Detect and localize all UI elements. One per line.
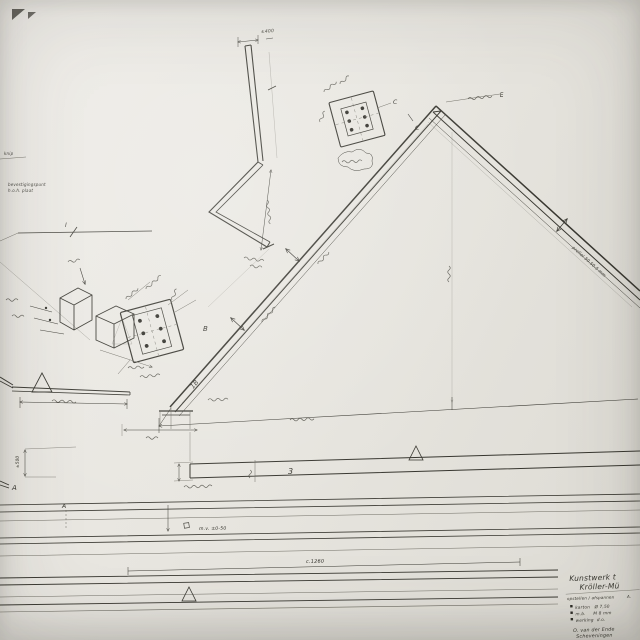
- right-slope-outer: [436, 106, 640, 291]
- illegible-annotation: [317, 251, 330, 265]
- beam-lines: [0, 381, 130, 395]
- bar-line: [0, 604, 558, 612]
- note-fastening-2: h.o.h. plaat: [8, 188, 33, 193]
- label-mark-e: E: [499, 92, 504, 99]
- illegible-annotation: [319, 111, 326, 123]
- dimension-line: [238, 40, 258, 42]
- illegible-annotation: [323, 81, 337, 93]
- title-footer-2: Scheveningen: [576, 633, 613, 640]
- dimension-ticks: [238, 35, 273, 47]
- left-slope-outer: [170, 106, 436, 407]
- ground-bars-lower: [0, 570, 558, 612]
- title-item-2: m.b. M 8 mm: [575, 610, 611, 616]
- plate-inner: [341, 102, 373, 136]
- label-mark-i: I: [65, 222, 67, 229]
- inner-dim-right: [428, 122, 632, 307]
- leader-arrows: [30, 268, 85, 334]
- point-marker: [49, 319, 51, 321]
- title-block: Kunstwerk t Kröller-Mü opstellen / afspa…: [565, 572, 640, 640]
- member-outline: [190, 451, 640, 478]
- bullet-icon: [571, 618, 573, 620]
- truss-foot-detail: [122, 398, 228, 461]
- bullet-icon: [570, 611, 572, 613]
- leader-lines: [0, 157, 26, 241]
- bolt-icon: [162, 339, 167, 344]
- member-3: 3: [174, 446, 640, 488]
- bolt-icon: [144, 344, 149, 349]
- label-part-3: 3: [288, 467, 293, 476]
- bar-line: [0, 597, 558, 605]
- title-item-3: werking d.o.: [576, 617, 606, 623]
- reference-line: [18, 231, 152, 233]
- span-dimension-line: [159, 399, 638, 426]
- left-slope-thin: [179, 115, 445, 416]
- inner-dim-left: [182, 124, 428, 403]
- beam-stub: [0, 481, 9, 488]
- bolt-icon: [141, 331, 146, 336]
- right-slope-inner: [433, 112, 640, 300]
- label-detail-c: C: [393, 99, 398, 106]
- beam-left-bottom: ±500 A: [0, 377, 130, 492]
- bar-line: [0, 510, 640, 521]
- right-slope-profile-note: profiel 50.50.5 mm: [571, 244, 608, 278]
- extension-lines: [122, 424, 190, 461]
- bracket-box-1: [60, 288, 92, 330]
- label-part-1b: 1B: [189, 378, 201, 390]
- illegible-annotation: [184, 485, 212, 488]
- bolt-icon: [360, 106, 364, 110]
- label-beam-c: C: [415, 125, 420, 132]
- square-marker-icon: [184, 523, 190, 529]
- title-item-1: karton Ø 7,50: [575, 604, 610, 610]
- illegible-annotation: [140, 374, 160, 379]
- mast-detail: ±400: [208, 28, 277, 307]
- leader-line: [377, 103, 391, 108]
- illegible-annotation: [6, 299, 18, 302]
- illegible-annotation: [68, 259, 80, 264]
- bolt-icon: [345, 110, 349, 114]
- dim-row: c.1260: [306, 559, 324, 565]
- illegible-annotation: [342, 160, 362, 164]
- mast-bar: [245, 45, 263, 162]
- illegible-annotation: [244, 257, 264, 262]
- base-plate-detail-b: B: [118, 275, 208, 379]
- leader-line: [208, 249, 269, 307]
- technical-drawing: ±400 1B profiel 50.50.5 mm E C: [0, 0, 640, 640]
- bar-pair: [0, 494, 640, 512]
- bar-pair: [0, 570, 558, 585]
- registration-triangle-icon: [28, 12, 36, 19]
- truss-triangle: 1B profiel 50.50.5 mm E C: [159, 92, 640, 433]
- bar-line: [0, 545, 640, 556]
- bar-pair: [0, 527, 640, 544]
- plate-outline: [329, 91, 385, 147]
- base-plate-detail-c: C: [319, 75, 398, 171]
- right-slope-thin: [429, 118, 640, 308]
- illegible-annotation: [208, 398, 228, 401]
- bolt-icon: [365, 123, 369, 127]
- blueprint-photo: ±400 1B profiel 50.50.5 mm E C: [0, 0, 640, 640]
- illegible-annotation: [12, 315, 24, 318]
- illegible-annotation: [448, 266, 451, 282]
- illegible-annotation: [339, 75, 350, 85]
- label-detail-b: B: [203, 325, 208, 333]
- bolt-icon: [155, 314, 160, 319]
- dim-height-left: ±500: [15, 456, 20, 468]
- extension-line: [269, 52, 277, 158]
- bolt-icon: [138, 318, 143, 323]
- cross-dimension: [286, 249, 299, 261]
- bracket-sketch: [0, 259, 152, 392]
- illegible-annotation: [125, 287, 139, 300]
- illegible-annotation: [146, 437, 158, 440]
- left-annotations: I knip bevestigingspunt h.o.h. plaat: [0, 151, 152, 241]
- title-subtitle-right: A.: [626, 594, 632, 599]
- bolt-icon: [349, 128, 353, 132]
- cross-dimension: [231, 318, 244, 330]
- registration-marks: [12, 9, 36, 20]
- illegible-annotation: [145, 275, 162, 290]
- dimension-row: c.1260: [128, 558, 520, 575]
- bar-caps: [258, 162, 274, 249]
- bar-line: [0, 589, 558, 597]
- illegible-annotation: [249, 470, 252, 478]
- chevron-bar-outer: [209, 162, 267, 247]
- label-ground-a: A: [61, 503, 66, 510]
- title-line-2: Kröller-Mü: [579, 581, 619, 591]
- dim-mast-top: ±400: [261, 28, 275, 35]
- leader-lines: [118, 282, 196, 374]
- illegible-annotation: [128, 366, 144, 370]
- note-fastening-1: bevestigingspunt: [8, 182, 46, 187]
- bolt-icon: [158, 326, 163, 331]
- ground-bars-upper: A m.v. ±0-50: [0, 494, 640, 556]
- extension-lines: [25, 447, 76, 477]
- registration-triangle-icon: [12, 9, 25, 20]
- beam-lines: [0, 377, 130, 392]
- tick: [408, 114, 413, 121]
- datum-triangle-icon: [32, 373, 52, 392]
- left-slope-inner: [175, 111, 441, 412]
- revision-cloud: [338, 149, 372, 170]
- point-marker: [45, 307, 47, 309]
- dimension-ticks: [159, 397, 452, 433]
- bullet-icon: [570, 605, 572, 607]
- note-knip: knip: [4, 151, 14, 156]
- label-detail-a: A: [11, 484, 17, 492]
- dim-ground-level: m.v. ±0-50: [199, 526, 227, 532]
- title-subtitle: opstellen / afspannen: [567, 594, 615, 601]
- apex-leader: [446, 94, 500, 102]
